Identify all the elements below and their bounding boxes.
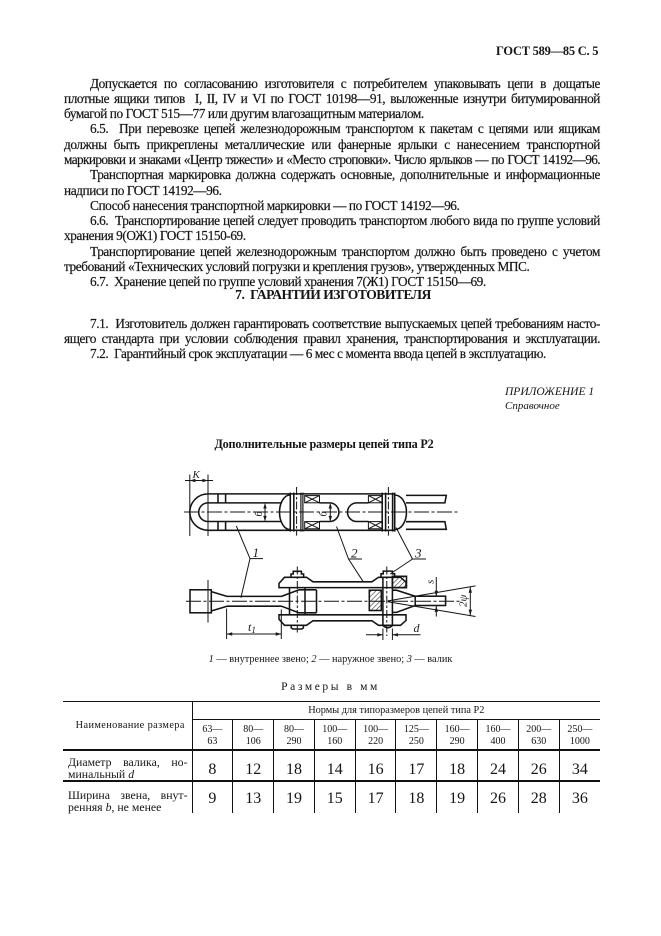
svg-text:К: К xyxy=(192,469,201,481)
svg-text:2ψ: 2ψ xyxy=(458,595,470,608)
svg-text:s: s xyxy=(424,580,436,584)
svg-text:б: б xyxy=(319,511,330,517)
svg-text:3: 3 xyxy=(414,545,422,560)
svg-text:б: б xyxy=(254,511,265,517)
svg-text:d: d xyxy=(414,621,421,635)
svg-text:t1: t1 xyxy=(248,620,256,635)
svg-text:1: 1 xyxy=(253,545,260,560)
svg-text:2: 2 xyxy=(351,545,358,560)
